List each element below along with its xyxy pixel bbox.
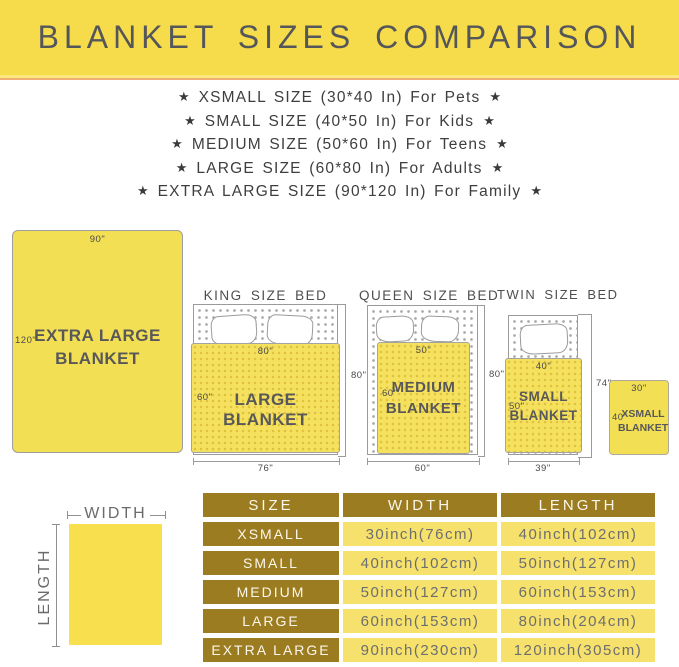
blanket-size-infographic: BLANKET SIZES COMPARISON ★XSMALL SIZE (3… bbox=[0, 0, 679, 667]
queen-bed-length-dim-line bbox=[478, 305, 485, 457]
queen-bed-title: QUEEN SIZE BED bbox=[359, 288, 489, 303]
king-bed-width-label: 76" bbox=[193, 463, 338, 474]
twin-bed-length-dim-line bbox=[578, 314, 592, 458]
small-blanket-width-label: 40" bbox=[506, 361, 581, 372]
king-pillow-right bbox=[266, 314, 314, 346]
feature-text-large: LARGE SIZE (60*80 In) For Adults bbox=[196, 160, 482, 177]
star-icon: ★ bbox=[530, 183, 542, 198]
extra-large-width-label: 90" bbox=[13, 234, 182, 245]
medium-blanket-diagram: 50" 60" MEDIUM BLANKET bbox=[377, 342, 470, 454]
star-icon: ★ bbox=[483, 113, 495, 128]
star-icon: ★ bbox=[171, 136, 183, 151]
twin-pillow bbox=[519, 323, 569, 355]
king-pillow-left bbox=[210, 313, 258, 346]
twin-bed-title: TWIN SIZE BED bbox=[497, 287, 607, 302]
extra-large-blanket-diagram: 90" 120" EXTRA LARGE BLANKET bbox=[12, 230, 183, 453]
banner-divider-orange bbox=[0, 78, 679, 80]
table-row-large-width: 60inch(153cm) bbox=[343, 609, 497, 633]
king-bed-length-dim-line bbox=[338, 304, 346, 457]
table-row-medium-width: 50inch(127cm) bbox=[343, 580, 497, 604]
size-feature-list: ★XSMALL SIZE (30*40 In) For Pets★ ★SMALL… bbox=[0, 85, 679, 203]
table-row-xsmall-length: 40inch(102cm) bbox=[501, 522, 655, 546]
king-bed-title: KING SIZE BED bbox=[193, 288, 338, 303]
xsmall-width-label: 30" bbox=[610, 383, 668, 394]
star-icon: ★ bbox=[178, 89, 190, 104]
feature-line-large: ★LARGE SIZE (60*80 In) For Adults★ bbox=[0, 156, 679, 180]
feature-text-xsmall: XSMALL SIZE (30*40 In) For Pets bbox=[199, 89, 481, 106]
table-row-small-length: 50inch(127cm) bbox=[501, 551, 655, 575]
large-blanket-name: LARGE BLANKET bbox=[192, 390, 339, 430]
queen-bed-length-label: 80" bbox=[489, 369, 504, 380]
table-row-medium-size: MEDIUM bbox=[203, 580, 339, 604]
star-icon: ★ bbox=[492, 160, 504, 175]
table-row-xsmall-size: XSMALL bbox=[203, 522, 339, 546]
legend-width-label: WIDTH bbox=[67, 505, 164, 523]
table-row-large-length: 80inch(204cm) bbox=[501, 609, 655, 633]
page-title: BLANKET SIZES COMPARISON bbox=[38, 19, 642, 56]
legend-blanket-swatch bbox=[69, 524, 162, 645]
star-icon: ★ bbox=[176, 160, 188, 175]
small-blanket-diagram: 40" 50" SMALL BLANKET bbox=[505, 358, 582, 453]
small-blanket-name: SMALL BLANKET bbox=[506, 387, 581, 425]
feature-text-extra-large: EXTRA LARGE SIZE (90*120 In) For Family bbox=[158, 183, 522, 200]
xsmall-blanket-name: XSMALL BLANKET bbox=[610, 407, 668, 435]
size-table: SIZE WIDTH LENGTH XSMALL 30inch(76cm) 40… bbox=[203, 493, 655, 662]
feature-text-medium: MEDIUM SIZE (50*60 In) For Teens bbox=[192, 136, 487, 153]
twin-bed-width-label: 39" bbox=[508, 463, 578, 474]
queen-bed-width-label: 60" bbox=[367, 463, 478, 474]
star-icon: ★ bbox=[137, 183, 149, 198]
table-row-xsmall-width: 30inch(76cm) bbox=[343, 522, 497, 546]
queen-pillow-left bbox=[375, 315, 414, 343]
table-row-large-size: LARGE bbox=[203, 609, 339, 633]
table-header-length: LENGTH bbox=[501, 493, 655, 517]
large-blanket-diagram: 80" 60" LARGE BLANKET bbox=[191, 343, 340, 453]
medium-blanket-width-label: 50" bbox=[378, 345, 469, 356]
queen-pillow-right bbox=[421, 315, 460, 342]
feature-line-small: ★SMALL SIZE (40*50 In) For Kids★ bbox=[0, 109, 679, 133]
table-row-extra-large-length: 120inch(305cm) bbox=[501, 638, 655, 662]
feature-line-medium: ★MEDIUM SIZE (50*60 In) For Teens★ bbox=[0, 132, 679, 156]
table-row-medium-length: 60inch(153cm) bbox=[501, 580, 655, 604]
table-row-extra-large-width: 90inch(230cm) bbox=[343, 638, 497, 662]
large-blanket-width-label: 80" bbox=[192, 346, 339, 357]
feature-line-extra-large: ★EXTRA LARGE SIZE (90*120 In) For Family… bbox=[0, 179, 679, 203]
xsmall-blanket-diagram: 30" 40" XSMALL BLANKET bbox=[609, 380, 669, 455]
feature-text-small: SMALL SIZE (40*50 In) For Kids bbox=[205, 113, 474, 130]
banner: BLANKET SIZES COMPARISON bbox=[0, 0, 679, 75]
table-row-extra-large-size: EXTRA LARGE bbox=[203, 638, 339, 662]
table-header-width: WIDTH bbox=[343, 493, 497, 517]
feature-line-xsmall: ★XSMALL SIZE (30*40 In) For Pets★ bbox=[0, 85, 679, 109]
star-icon: ★ bbox=[496, 136, 508, 151]
table-header-size: SIZE bbox=[203, 493, 339, 517]
extra-large-blanket-name: EXTRA LARGE BLANKET bbox=[13, 324, 182, 370]
legend-length-label: LENGTH bbox=[36, 507, 54, 667]
king-bed-length-label: 80" bbox=[351, 370, 366, 381]
medium-blanket-name: MEDIUM BLANKET bbox=[378, 377, 469, 419]
star-icon: ★ bbox=[489, 89, 501, 104]
table-row-small-size: SMALL bbox=[203, 551, 339, 575]
table-row-small-width: 40inch(102cm) bbox=[343, 551, 497, 575]
star-icon: ★ bbox=[184, 113, 196, 128]
